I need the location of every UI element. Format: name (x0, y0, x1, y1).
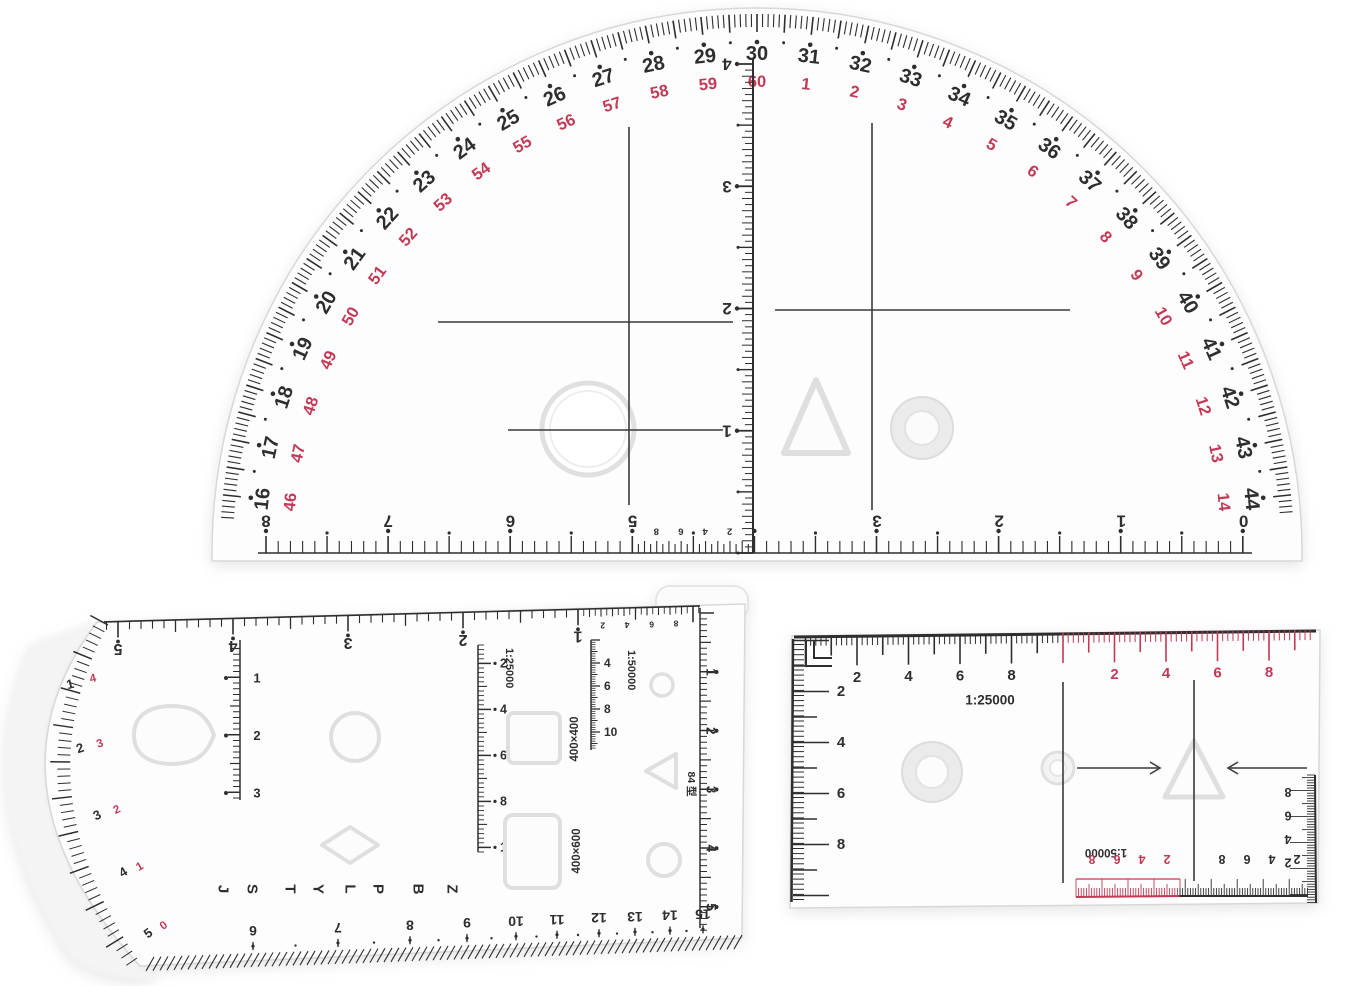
arc-number-black: 32 (847, 52, 873, 78)
arc-number-black: 30 (746, 43, 768, 65)
arc-number-black: 44 (1239, 487, 1263, 512)
bottom-black-number: 6 (1243, 852, 1250, 866)
center-ruler-number: 2 (722, 299, 731, 318)
stencil-letter: S (244, 884, 261, 894)
stencil-letter: L (342, 884, 359, 893)
bottom-red-number: 4 (1138, 852, 1145, 866)
template-top-tenth-number: 8 (673, 619, 678, 629)
coordinate-template-ruler: 1:25000 1:50000 400×400 400×600 84 型 543… (5, 586, 748, 979)
slope-number: 6 (249, 923, 257, 939)
right-scale-number: 2 (1284, 856, 1291, 870)
top-red-number: 2 (1110, 666, 1118, 683)
slope-number: 7 (334, 920, 342, 936)
left-scale-number: 4 (837, 734, 846, 751)
arc-number-red: 13 (1205, 443, 1226, 465)
top-red-number: 8 (1265, 664, 1273, 681)
arc-number-red: 58 (649, 82, 671, 103)
slope-number: 10 (508, 913, 524, 929)
bottom-black-number: 4 (1268, 852, 1275, 866)
scale50-number: 6 (604, 679, 611, 693)
arc-number-black: 28 (640, 52, 666, 78)
slope-number: 14 (662, 908, 678, 924)
rectangle-size-label: 400×600 (571, 828, 583, 873)
slope-number: 15 (695, 906, 711, 922)
top-black-number: 2 (853, 669, 861, 686)
rectangle-cutout (505, 815, 560, 888)
stencil-letter: Y (310, 884, 327, 894)
inner-ruler-number: 1 (253, 671, 260, 686)
arc-number-red: 14 (1214, 492, 1234, 513)
slope-number: 9 (463, 915, 471, 931)
bottom-ruler-number: 3 (872, 512, 881, 531)
center-ruler-number: 1 (722, 421, 731, 440)
left-scale-number: 8 (837, 836, 845, 853)
bottom-black-number: 2 (1293, 852, 1300, 866)
scale-50000-label: 1:50000 (625, 650, 637, 690)
bottom-red-number: 8 (1088, 852, 1095, 866)
left-scale-number: 6 (837, 785, 845, 802)
scale25-number: 2 (500, 656, 507, 670)
protractor: 1617181920212223242526272829303132333435… (212, 8, 1302, 561)
top-black-number: 4 (904, 668, 913, 685)
dual-scale-ruler: 1:25000 1:50000 246824682468864286428642 (790, 630, 1320, 908)
square-size-label: 400×400 (569, 716, 581, 761)
right-scale-number: 4 (704, 844, 719, 852)
top-black-number: 6 (956, 668, 964, 685)
arc-number-red: 59 (698, 75, 718, 95)
stencil-letter: J (215, 885, 232, 893)
bottom-black-number: 8 (1218, 852, 1225, 866)
bottom-ruler-number: 6 (506, 512, 515, 531)
bottom-tenth-number: 2 (727, 526, 732, 537)
left-scale-number: 2 (837, 683, 845, 700)
arc-number-black: 29 (693, 45, 717, 69)
scale25-number: 4 (500, 702, 507, 716)
bottom-ruler-number: 8 (261, 512, 270, 531)
stencil-letter: Z (444, 884, 461, 893)
scale-ruler-25000-label: 1:25000 (965, 693, 1015, 708)
scale50-number: 10 (604, 725, 618, 739)
stencil-letter: B (410, 884, 427, 895)
scale25-number: 8 (500, 794, 507, 808)
center-ruler-number: 4 (722, 55, 732, 74)
bottom-ruler-number: 5 (628, 512, 637, 531)
center-ruler-number: 3 (722, 177, 731, 196)
right-scale-number: 2 (704, 727, 719, 735)
circle-cutout (331, 713, 379, 761)
bottom-tenth-number: 8 (654, 526, 659, 537)
inner-ruler-number: 3 (253, 786, 260, 801)
slope-number: 8 (406, 917, 414, 933)
arc-number-black: 16 (251, 487, 275, 511)
bottom-tenth-number: 6 (678, 526, 683, 537)
arc-number-black: 31 (797, 45, 821, 69)
bottom-red-number: 6 (1113, 852, 1120, 866)
template-top-tenth-number: 4 (625, 620, 630, 630)
arc-number-red: 46 (281, 492, 301, 512)
square-cutout (508, 713, 560, 763)
washer-hole-inner (916, 756, 948, 788)
small-circle-cutout-2 (648, 844, 680, 876)
washer-hole-inner (905, 411, 939, 445)
scale50-number: 8 (604, 702, 611, 716)
template-top-number: 5 (113, 640, 122, 657)
lens-hole (542, 383, 634, 475)
bottom-red-number: 2 (1163, 852, 1170, 866)
scale25-number: 6 (500, 748, 507, 762)
teardrop-cutout (134, 706, 214, 764)
right-scale-number: 1 (704, 668, 719, 676)
template-top-number: 4 (228, 637, 237, 654)
inner-ruler-number: 2 (253, 728, 260, 743)
top-red-number: 4 (1162, 665, 1171, 682)
bottom-ruler-number: 1 (1117, 512, 1126, 531)
photo-canvas: 1617181920212223242526272829303132333435… (0, 0, 1351, 986)
template-top-tenth-number: 6 (649, 619, 654, 629)
right-scale-number: 6 (1284, 809, 1291, 823)
slope-number: 13 (627, 909, 643, 925)
template-top-number: 1 (573, 628, 582, 645)
product-photo: 1617181920212223242526272829303132333435… (0, 0, 1351, 986)
slope-number: 12 (591, 910, 607, 926)
arc-number-red: 47 (288, 443, 309, 465)
scale50-number: 4 (604, 656, 611, 670)
template-top-number: 3 (343, 634, 352, 651)
stencil-letter: P (370, 884, 387, 894)
slope-number: 11 (549, 912, 564, 928)
bottom-ruler-number: 2 (994, 512, 1003, 531)
template-top-number: 2 (458, 631, 467, 648)
template-top-tenth-number: 2 (600, 621, 605, 631)
right-scale-number: 3 (704, 786, 719, 794)
right-scale-number: 4 (1284, 832, 1291, 846)
right-scale-number: 8 (1284, 785, 1291, 799)
top-red-number: 6 (1213, 665, 1221, 682)
top-black-number: 8 (1007, 667, 1015, 684)
small-circle-cutout (651, 674, 673, 696)
bottom-ruler-number: 7 (383, 512, 392, 531)
bottom-tenth-number: 4 (702, 526, 708, 537)
bottom-ruler-number: 0 (1239, 512, 1248, 531)
stencil-letter: T (282, 884, 299, 893)
model-label: 84 型 (685, 771, 698, 797)
arc-number-black: 17 (258, 434, 284, 460)
arc-number-red: 1 (801, 75, 812, 94)
arc-number-black: 43 (1230, 434, 1256, 460)
